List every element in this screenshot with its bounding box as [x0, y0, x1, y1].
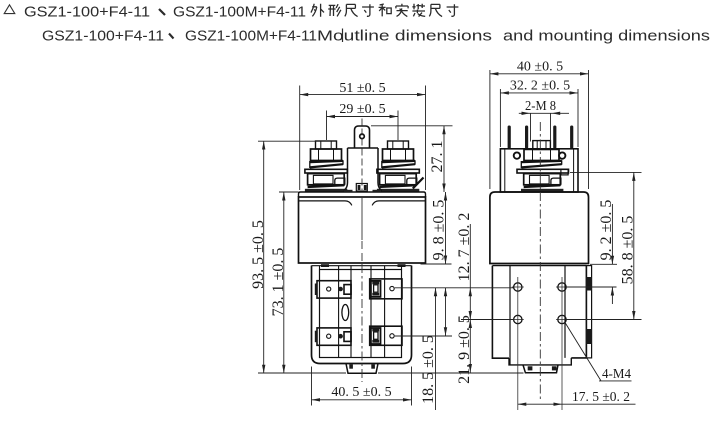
svg-text:GSZ1-100M+F4-11: GSZ1-100M+F4-11 [185, 28, 317, 45]
svg-text:40. 5 ±0. 5: 40. 5 ±0. 5 [331, 385, 391, 400]
svg-text:9. 8 ±0. 5: 9. 8 ±0. 5 [431, 200, 448, 261]
svg-text:GSZ1-100+F4-11: GSZ1-100+F4-11 [42, 28, 164, 45]
svg-text:9. 2 ±0. 5: 9. 2 ±0. 5 [598, 200, 615, 261]
svg-text:Moutline dimensions: Moutline dimensions [317, 28, 492, 45]
svg-text:93. 5 ±0. 5: 93. 5 ±0. 5 [250, 220, 267, 289]
svg-text:12. 7 ±0. 2: 12. 7 ±0. 2 [456, 213, 473, 282]
svg-text:32. 2 ±0. 5: 32. 2 ±0. 5 [510, 79, 570, 94]
svg-text:18. 5 ±0. 5: 18. 5 ±0. 5 [420, 335, 437, 404]
svg-text:17. 5 ±0. 2: 17. 5 ±0. 2 [572, 390, 630, 405]
svg-text:2-M 8: 2-M 8 [525, 99, 556, 114]
svg-text:GSZ1-100M+F4-11: GSZ1-100M+F4-11 [173, 4, 306, 21]
svg-text:4-M4: 4-M4 [602, 367, 631, 382]
svg-text:27. 1: 27. 1 [429, 141, 446, 173]
svg-text:73. 1 ±0. 5: 73. 1 ±0. 5 [270, 248, 287, 317]
svg-text:51 ±0. 5: 51 ±0. 5 [339, 81, 385, 96]
svg-text:58. 8 ±0. 5: 58. 8 ±0. 5 [620, 216, 637, 285]
svg-text:40 ±0. 5: 40 ±0. 5 [517, 60, 563, 75]
svg-text:29 ±0. 5: 29 ±0. 5 [339, 102, 385, 117]
svg-text:21. 9 ±0. 5: 21. 9 ±0. 5 [456, 315, 473, 384]
svg-text:GSZ1-100+F4-11: GSZ1-100+F4-11 [24, 4, 150, 21]
svg-text:and mounting dimensions: and mounting dimensions [503, 28, 710, 45]
